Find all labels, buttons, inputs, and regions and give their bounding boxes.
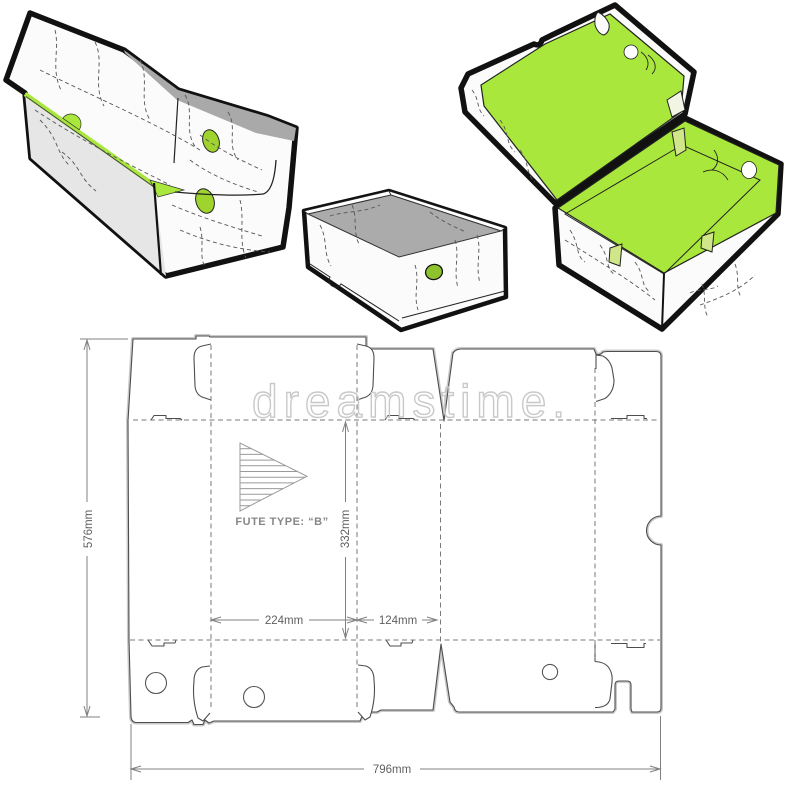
- svg-text:dreamstime.: dreamstime.: [252, 375, 571, 427]
- svg-text:124mm: 124mm: [379, 615, 417, 627]
- svg-text:796mm: 796mm: [373, 764, 411, 776]
- svg-text:332mm: 332mm: [340, 510, 352, 548]
- svg-text:224mm: 224mm: [265, 615, 303, 627]
- svg-text:FUTE TYPE: “B”: FUTE TYPE: “B”: [235, 516, 328, 528]
- svg-text:576mm: 576mm: [83, 510, 95, 548]
